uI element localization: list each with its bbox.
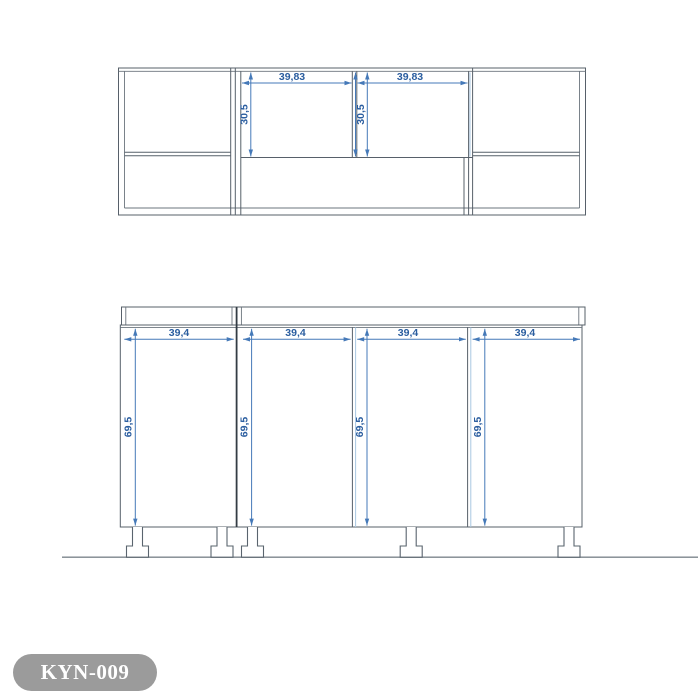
cabinet-technical-drawing: 39,83 39,83 30,5 30,5 — [0, 0, 700, 700]
wall-cabinet-drawing: 39,83 39,83 30,5 30,5 — [119, 68, 586, 215]
wall-cabinet-dimensions: 39,83 39,83 30,5 30,5 — [239, 71, 471, 157]
upper-opening-width-2: 39,83 — [397, 71, 423, 83]
drawing-sheet: 39,83 39,83 30,5 30,5 — [0, 0, 700, 700]
wall-cabinet-structure — [119, 68, 586, 215]
base-door-height-4: 69,5 — [472, 417, 484, 438]
base-door-width-4: 39,4 — [515, 327, 536, 339]
base-cabinet-drawing: 39,4 39,4 39,4 39,4 69,5 69,5 69,5 69,5 — [62, 307, 698, 557]
product-code-text: KYN-009 — [41, 660, 130, 685]
upper-opening-height-2: 30,5 — [355, 104, 367, 125]
base-door-width-3: 39,4 — [398, 327, 419, 339]
base-cabinet-structure — [120, 307, 585, 527]
base-door-height-3: 69,5 — [354, 417, 366, 438]
base-door-height-1: 69,5 — [122, 417, 134, 438]
upper-opening-width-1: 39,83 — [279, 71, 305, 83]
base-door-width-1: 39,4 — [169, 327, 190, 339]
base-cabinet-dimensions: 39,4 39,4 39,4 39,4 69,5 69,5 69,5 69,5 — [122, 327, 580, 526]
base-door-height-2: 69,5 — [239, 417, 251, 438]
base-door-width-2: 39,4 — [285, 327, 306, 339]
upper-opening-height-1: 30,5 — [239, 104, 251, 125]
product-code-badge: KYN-009 — [13, 654, 157, 691]
cabinet-legs — [127, 527, 581, 557]
